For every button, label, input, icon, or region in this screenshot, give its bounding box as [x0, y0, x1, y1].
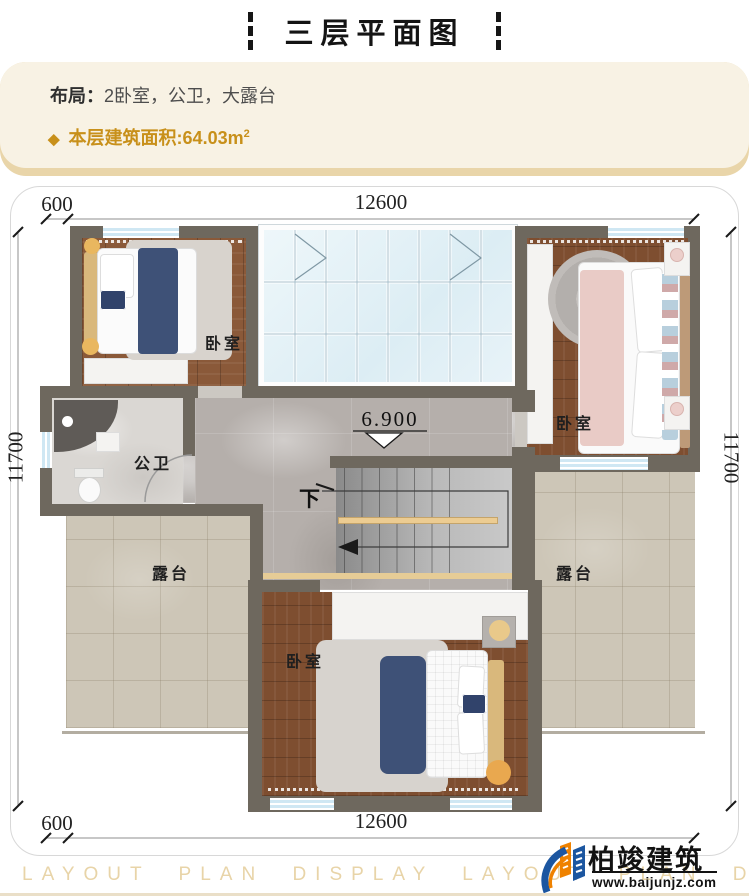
wall [246, 226, 258, 398]
stool [489, 620, 510, 641]
room-label-terrace-right: 露台 [556, 560, 594, 584]
terrace-right-parapet [524, 731, 705, 734]
wall [512, 390, 535, 412]
toilet-bowl [78, 477, 101, 503]
window [608, 226, 684, 238]
stool [84, 238, 100, 254]
window [40, 432, 52, 468]
stair-steps-upper [344, 468, 466, 518]
lamp [670, 248, 684, 262]
dim-top-width: 12600 [321, 190, 441, 215]
wall [262, 580, 320, 592]
bed-duvet [138, 248, 178, 354]
wall [515, 238, 527, 412]
wall [40, 386, 198, 398]
terrace-left-floor [66, 516, 250, 728]
curtain [530, 240, 684, 243]
bed-duvet [380, 656, 426, 774]
terrace-left-parapet [62, 731, 254, 734]
wall [250, 504, 263, 590]
dim-top-offset: 600 [34, 192, 80, 217]
stair-edge [263, 573, 512, 579]
accent-pillow [462, 694, 486, 714]
wall [40, 504, 252, 516]
room-label-bedroom-top-right: 卧室 [556, 410, 594, 434]
window [450, 798, 512, 810]
wall [248, 580, 262, 812]
door-threshold [198, 386, 242, 398]
wall [528, 580, 542, 812]
elevation-marker: 6.900 [350, 407, 430, 432]
terrace-right-floor [528, 472, 695, 728]
room-label-bedroom-top-left: 卧室 [205, 330, 243, 354]
wardrobe [527, 244, 553, 444]
wall [258, 386, 518, 398]
page: { "header": { "title": "三层平面图" }, "info_… [0, 0, 749, 896]
room-label-bathroom: 公卫 [134, 450, 172, 474]
window [560, 457, 648, 470]
shower-head [62, 416, 73, 427]
wall [70, 226, 82, 398]
wall [512, 447, 535, 590]
floor-plan: 600 12600 600 12600 11700 11700 卧室 卧室 卧室… [0, 0, 749, 896]
wall [330, 456, 512, 468]
window [103, 226, 179, 238]
stair-steps-lower [344, 524, 466, 573]
bed-headboard [488, 660, 504, 768]
wall [242, 386, 258, 398]
room-label-bedroom-bottom: 卧室 [286, 648, 324, 672]
dim-right-height: 11700 [719, 410, 744, 506]
stool [82, 338, 99, 355]
stair-rail [338, 517, 498, 524]
dim-bottom-offset: 600 [34, 811, 80, 836]
brand-logo: 柏竣建筑 www.baijunjz.com [540, 838, 749, 896]
brand-url: www.baijunjz.com [592, 871, 717, 890]
door-threshold [183, 455, 195, 503]
skylight-glass [264, 230, 512, 382]
stairs-down-label: 下 [299, 483, 320, 513]
dim-bottom-width: 12600 [321, 809, 441, 834]
bed-pillow [457, 711, 485, 754]
dim-left-height: 11700 [4, 410, 29, 506]
wall [183, 398, 195, 456]
door-leaf [515, 412, 527, 447]
room-label-terrace-left: 露台 [152, 560, 190, 584]
sink [96, 432, 120, 452]
accent-pillow [100, 290, 126, 310]
brand-building-icon [540, 840, 588, 894]
dresser [84, 358, 188, 384]
bed-headboard [84, 252, 98, 350]
lamp [670, 402, 684, 416]
stool [486, 760, 511, 785]
